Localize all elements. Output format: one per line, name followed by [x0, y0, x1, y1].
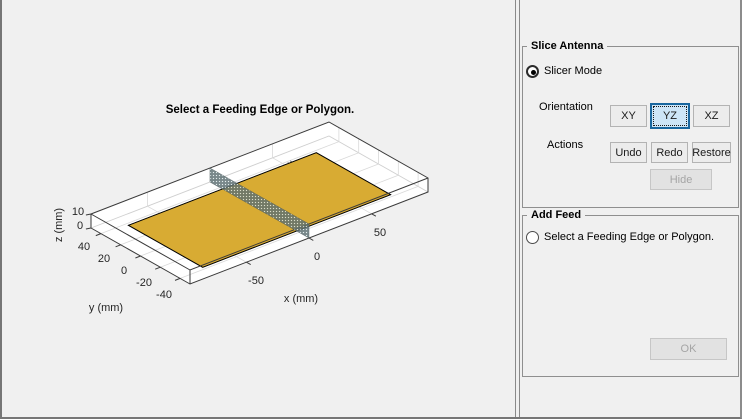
antenna-designer-window: Select a Feeding Edge or Polygon. -50 0 … [0, 0, 742, 419]
y-tick-label: -40 [156, 289, 172, 301]
z-tick-label: 0 [77, 220, 83, 232]
actions-label: Actions [547, 139, 583, 151]
orientation-yz-button[interactable]: YZ [650, 103, 690, 129]
feed-select-label: Select a Feeding Edge or Polygon. [544, 231, 714, 243]
undo-button[interactable]: Undo [610, 142, 647, 163]
orientation-label: Orientation [539, 101, 593, 113]
z-tick-label: 10 [72, 206, 84, 218]
x-tick-label: 50 [374, 227, 386, 239]
add-feed-group-title: Add Feed [527, 209, 585, 221]
orientation-xy-button[interactable]: XY [610, 105, 647, 127]
hide-button[interactable]: Hide [650, 169, 712, 190]
redo-button[interactable]: Redo [651, 142, 688, 163]
ok-button[interactable]: OK [650, 338, 727, 360]
y-tick-label: 40 [78, 241, 90, 253]
slicer-mode-label: Slicer Mode [544, 65, 602, 77]
orientation-xz-button[interactable]: XZ [693, 105, 730, 127]
slicer-mode-radio[interactable] [526, 65, 539, 78]
plot-title: Select a Feeding Edge or Polygon. [100, 104, 420, 116]
feed-select-radio[interactable] [526, 231, 539, 244]
control-panel: Slice Antenna Slicer Mode Orientation XY… [520, 0, 742, 417]
y-tick-label: 0 [121, 265, 127, 277]
slice-antenna-group-title: Slice Antenna [527, 40, 607, 52]
restore-button[interactable]: Restore [692, 142, 731, 163]
y-axis-label: y (mm) [89, 302, 123, 314]
x-tick-label: 0 [314, 251, 320, 263]
radio-dot [531, 70, 536, 75]
z-axis-label: z (mm) [53, 208, 65, 242]
x-axis-label: x (mm) [284, 293, 318, 305]
plot-area[interactable]: Select a Feeding Edge or Polygon. -50 0 … [2, 0, 514, 417]
y-tick-label: -20 [136, 277, 152, 289]
x-tick-label: -50 [248, 275, 264, 287]
y-tick-label: 20 [98, 253, 110, 265]
